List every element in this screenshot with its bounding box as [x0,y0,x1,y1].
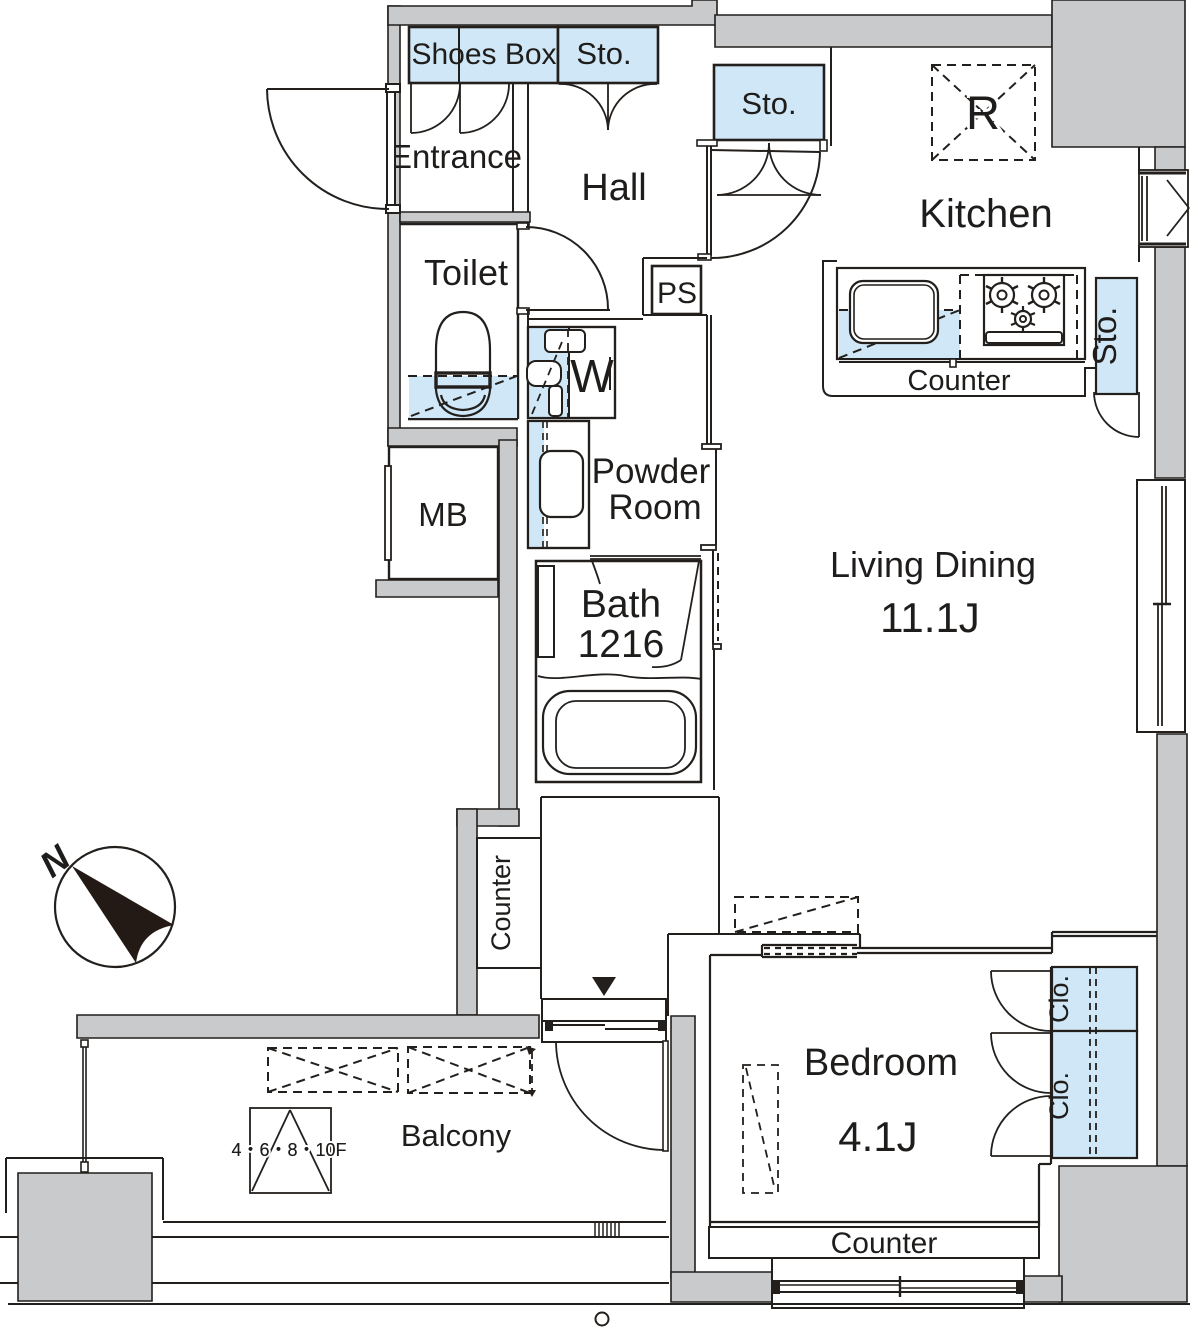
svg-text:Bedroom: Bedroom [804,1042,958,1084]
svg-text:Sto.: Sto. [1086,307,1123,366]
svg-text:Sto.: Sto. [741,86,796,121]
svg-text:Counter: Counter [831,1227,938,1260]
svg-text:Counter: Counter [486,855,516,951]
svg-text:W: W [570,350,614,402]
svg-text:Toilet: Toilet [424,252,508,293]
svg-text:Sto.: Sto. [576,36,631,71]
svg-text:4.1J: 4.1J [838,1113,917,1160]
svg-text:Shoes Box: Shoes Box [411,38,556,71]
svg-text:PS: PS [657,277,697,310]
svg-text:Living Dining: Living Dining [830,544,1036,585]
svg-text:Hall: Hall [581,167,646,209]
svg-text:Powder: Powder [592,452,711,491]
svg-text:Clo.: Clo. [1044,975,1074,1023]
svg-text:R: R [966,86,1000,139]
svg-text:Entrance: Entrance [390,138,522,175]
svg-text:Room: Room [608,488,701,527]
svg-text:4・6・8・10F: 4・6・8・10F [231,1140,346,1160]
svg-text:Bath: Bath [581,583,661,626]
svg-text:Balcony: Balcony [401,1118,512,1153]
svg-text:11.1J: 11.1J [880,594,980,641]
svg-text:1216: 1216 [578,623,665,666]
svg-text:MB: MB [418,496,468,533]
svg-text:Counter: Counter [907,365,1011,397]
svg-text:Kitchen: Kitchen [919,192,1052,236]
